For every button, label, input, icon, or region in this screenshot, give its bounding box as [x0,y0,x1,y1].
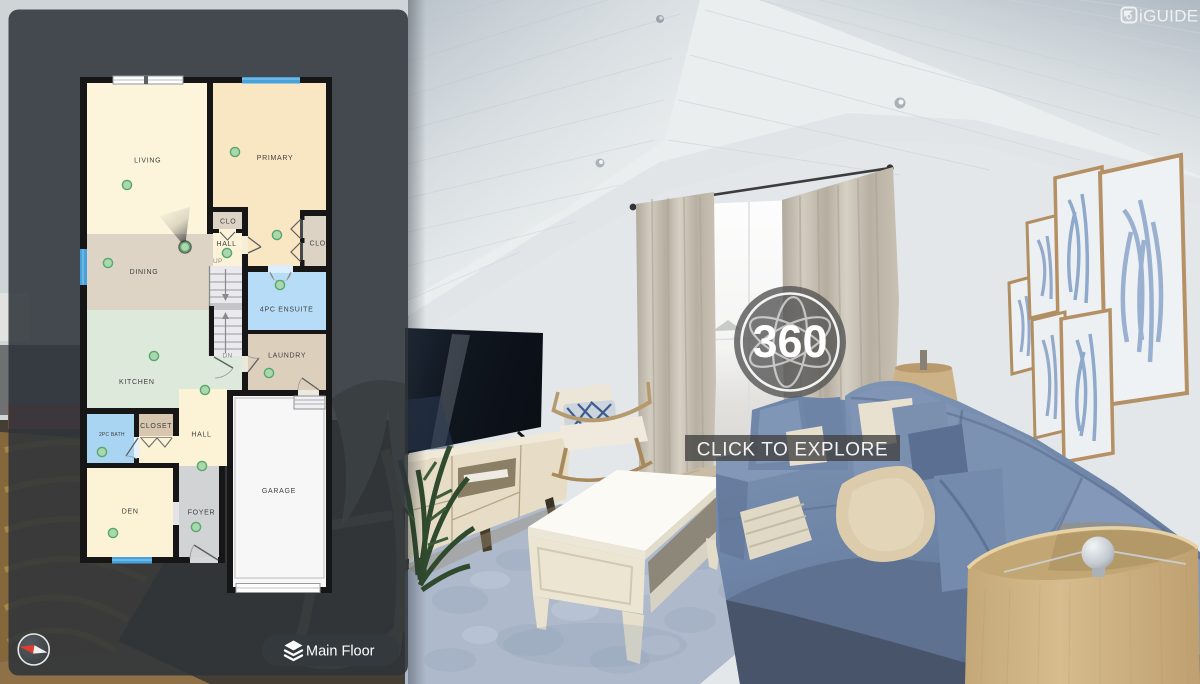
svg-text:CLO: CLO [220,218,237,225]
svg-text:iGUIDE: iGUIDE [1139,7,1198,26]
svg-text:CLICK TO EXPLORE: CLICK TO EXPLORE [697,440,889,461]
svg-text:Main Floor: Main Floor [306,644,375,660]
svg-text:KITCHEN: KITCHEN [119,379,155,386]
svg-text:HALL: HALL [191,432,211,439]
svg-text:DINING: DINING [130,269,159,276]
svg-text:4PC ENSUITE: 4PC ENSUITE [260,306,314,313]
svg-text:360: 360 [752,316,827,367]
svg-text:GARAGE: GARAGE [262,488,296,495]
svg-text:DN: DN [223,353,233,360]
svg-text:DEN: DEN [122,508,139,515]
svg-text:LAUNDRY: LAUNDRY [268,352,306,359]
svg-text:CLO: CLO [309,240,326,247]
svg-text:UP: UP [213,258,223,265]
svg-text:PRIMARY: PRIMARY [257,155,294,162]
svg-text:LIVING: LIVING [134,157,161,164]
svg-text:FOYER: FOYER [188,510,216,517]
svg-text:2PC BATH: 2PC BATH [99,432,125,438]
svg-text:HALL: HALL [216,241,236,248]
svg-text:CLOSET: CLOSET [140,423,172,430]
